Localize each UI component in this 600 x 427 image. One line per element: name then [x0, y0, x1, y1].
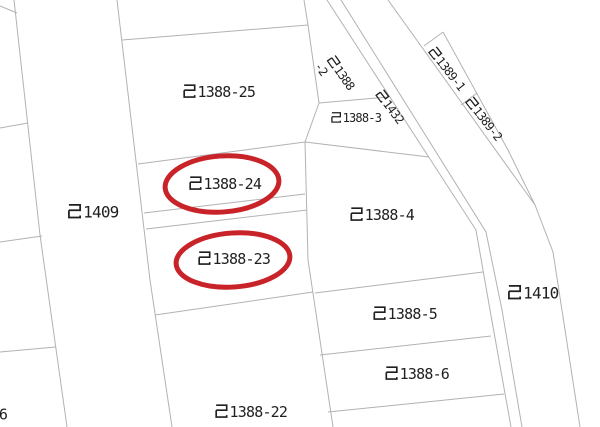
cadastral-map[interactable]: 1388-251388-241388-2314091388-214321388-… — [0, 0, 600, 427]
highlight-ellipse-1388-23 — [174, 229, 291, 291]
parcel-boundaries — [0, 0, 580, 427]
highlight-annotations — [163, 152, 292, 291]
map-canvas — [0, 0, 600, 427]
highlight-ellipse-1388-24 — [163, 152, 281, 216]
